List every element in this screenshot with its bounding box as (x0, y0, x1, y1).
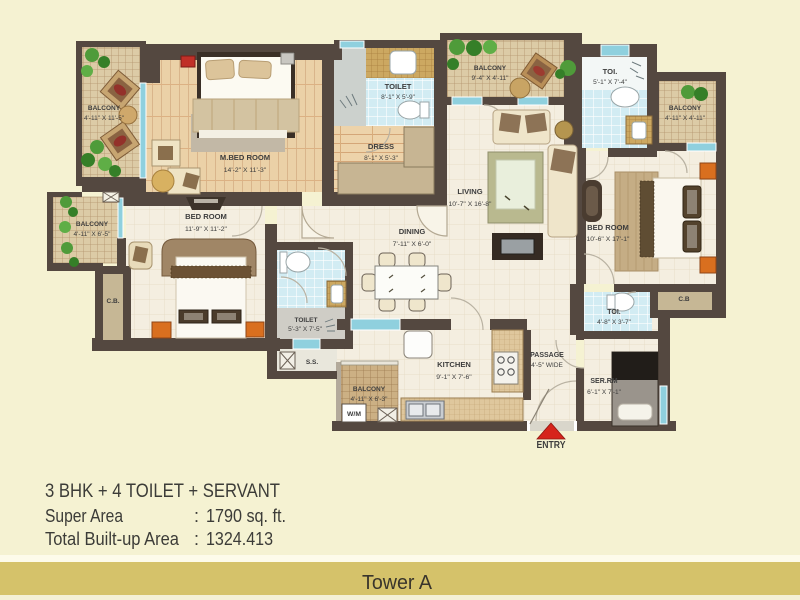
svg-text:5'-1" X 7'-4": 5'-1" X 7'-4" (593, 79, 628, 86)
svg-text:PASSAGE: PASSAGE (530, 352, 564, 359)
svg-text:BED ROOM: BED ROOM (587, 223, 629, 232)
svg-text:4'-11" X 11'-5": 4'-11" X 11'-5" (84, 115, 125, 122)
svg-text:9'-4" X 4'-11": 9'-4" X 4'-11" (472, 75, 510, 82)
svg-text:8'-1" X 5'-9": 8'-1" X 5'-9" (381, 94, 416, 101)
svg-text:W/M: W/M (347, 411, 361, 418)
svg-text::: : (194, 529, 199, 549)
svg-text:BALCONY: BALCONY (353, 386, 386, 393)
svg-text:4'-8" X 3'-7": 4'-8" X 3'-7" (597, 319, 632, 326)
svg-text:LIVING: LIVING (457, 187, 482, 196)
svg-text:11'-9" X 11'-2": 11'-9" X 11'-2" (185, 226, 228, 233)
svg-text:M.BED ROOM: M.BED ROOM (220, 153, 270, 162)
svg-text:TOI.: TOI. (603, 67, 618, 76)
svg-text::: : (194, 506, 199, 526)
svg-text:Super Area: Super Area (45, 506, 124, 526)
svg-text:7'-11" X 6'-0": 7'-11" X 6'-0" (393, 241, 432, 248)
svg-text:8'-1" X 5'-3": 8'-1" X 5'-3" (364, 155, 399, 162)
svg-text:4'-11" X 6'-5": 4'-11" X 6'-5" (74, 231, 112, 238)
svg-text:DINING: DINING (399, 227, 426, 236)
svg-text:TOI.: TOI. (607, 309, 621, 316)
svg-text:BALCONY: BALCONY (669, 105, 702, 112)
svg-text:BALCONY: BALCONY (474, 65, 507, 72)
svg-text:1324.413: 1324.413 (206, 529, 273, 549)
svg-text:14'-2" X 11'-3": 14'-2" X 11'-3" (224, 167, 267, 174)
svg-text:4'-5" WIDE: 4'-5" WIDE (531, 362, 563, 369)
svg-text:5'-3" X 7'-5": 5'-3" X 7'-5" (288, 326, 323, 333)
svg-text:4'-11" X 4'-11": 4'-11" X 4'-11" (665, 115, 706, 122)
svg-text:S.S.: S.S. (306, 359, 318, 366)
svg-text:ENTRY: ENTRY (537, 440, 566, 451)
svg-text:C.B: C.B (678, 296, 690, 303)
svg-text:10'-7" X 16'-8": 10'-7" X 16'-8" (449, 201, 493, 208)
svg-text:BALCONY: BALCONY (76, 221, 109, 228)
svg-text:KITCHEN: KITCHEN (437, 360, 471, 369)
svg-text:TOILET: TOILET (295, 317, 318, 324)
svg-text:10'-6" X 17'-1": 10'-6" X 17'-1" (587, 236, 631, 243)
svg-text:BALCONY: BALCONY (88, 105, 121, 112)
svg-text:3 BHK + 4 TOILET + SERVANT: 3 BHK + 4 TOILET + SERVANT (45, 481, 280, 502)
svg-text:Total Built-up Area: Total Built-up Area (45, 529, 180, 549)
svg-text:DRESS: DRESS (368, 142, 394, 151)
svg-text:Tower A: Tower A (362, 572, 433, 594)
svg-text:1790 sq. ft.: 1790 sq. ft. (206, 506, 286, 526)
svg-text:C.B.: C.B. (107, 298, 120, 305)
svg-text:4'-11" X 6'-3": 4'-11" X 6'-3" (351, 396, 389, 403)
svg-text:6'-1" X 7'-1": 6'-1" X 7'-1" (587, 389, 622, 396)
svg-text:9'-1" X 7'-6": 9'-1" X 7'-6" (436, 374, 472, 381)
svg-text:TOILET: TOILET (385, 82, 412, 91)
svg-text:SER.RM: SER.RM (590, 378, 617, 385)
svg-text:BED ROOM: BED ROOM (185, 212, 227, 221)
